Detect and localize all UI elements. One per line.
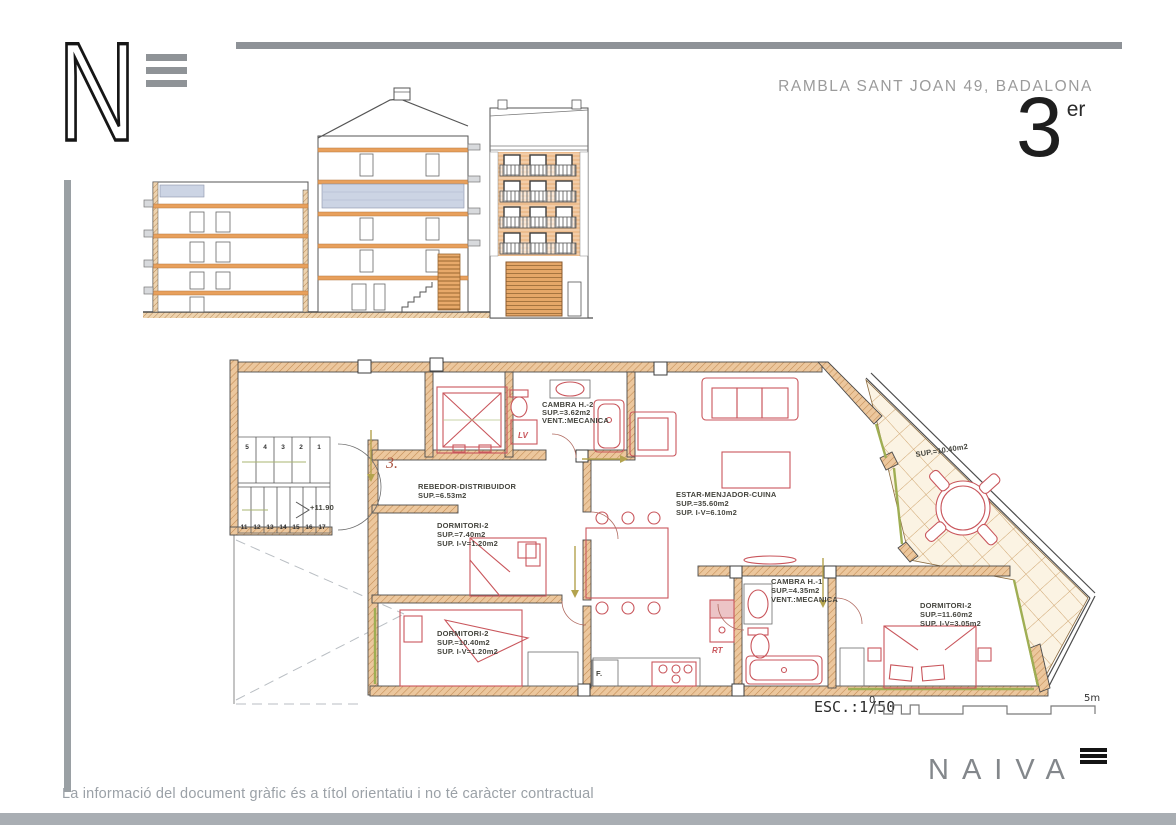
svg-text:SUP.=6.53m2: SUP.=6.53m2 — [418, 491, 467, 500]
floor-plan-drawing: 5 4 3 2 1 11 12 13 14 15 16 17 +11.90 — [225, 352, 1115, 724]
svg-text:SUP. I-V=6.10m2: SUP. I-V=6.10m2 — [676, 508, 737, 517]
section-left-building — [144, 182, 308, 312]
level-mark: +11.90 — [310, 503, 334, 512]
scale-bar: ESC.:1/50 0 5m — [814, 693, 1100, 716]
facade-garage-door — [506, 262, 562, 316]
sink-unit-label: RT — [712, 646, 724, 655]
stair-step-number: 3 — [281, 444, 285, 451]
svg-text:SUP.=7.40m2: SUP.=7.40m2 — [437, 530, 486, 539]
stairwell: 5 4 3 2 1 11 12 13 14 15 16 17 +11.90 — [238, 437, 381, 533]
stair-step-number: 1 — [317, 444, 321, 451]
room-label-estar: ESTAR-MENJADOR-CUINA SUP.=35.60m2 SUP. I… — [676, 490, 777, 517]
room-label-dormitori-se: DORMITORI-2 SUP.=11.60m2 SUP. I-V=3.05m2 — [920, 601, 981, 628]
logo-n-glyph: N — [56, 34, 151, 149]
scale-label: ESC.:1/50 — [814, 698, 895, 716]
stair-step-number: 16 — [305, 524, 313, 531]
svg-text:VENT.:MECANICA: VENT.:MECANICA — [771, 595, 838, 604]
stair-step-number: 15 — [292, 524, 300, 531]
svg-text:SUP.=10.40m2: SUP.=10.40m2 — [437, 638, 490, 647]
left-rule-bar — [64, 180, 71, 792]
legal-disclaimer: La informació del document gràfic és a t… — [62, 786, 594, 802]
terrace-table — [924, 469, 1002, 547]
logo-letter: N — [58, 34, 137, 149]
floor-suffix: er — [1067, 98, 1086, 122]
bottom-rule-bar — [0, 813, 1176, 825]
building-elevation-drawing — [138, 84, 604, 336]
stair-step-number: 5 — [245, 444, 249, 451]
brand-name: NAIVA — [928, 754, 1078, 787]
elevator — [437, 387, 507, 453]
stair-step-number: 12 — [253, 524, 261, 531]
room-label-rebedor: REBEDOR-DISTRIBUIDOR SUP.=6.53m2 — [418, 482, 517, 500]
room-label-cambra-h2: CAMBRA H.-2 SUP.=3.62m2 VENT.:MECANICA — [542, 400, 609, 425]
exterior-dashed-lines — [234, 535, 404, 704]
svg-text:SUP. I-V=1.20m2: SUP. I-V=1.20m2 — [437, 647, 498, 656]
stair-step-number: 2 — [299, 444, 303, 451]
floor-number: 3 — [1016, 88, 1063, 168]
scale-end: 5m — [1084, 693, 1100, 704]
ground-hatch — [143, 312, 493, 318]
stair-step-number: 11 — [241, 524, 248, 531]
brand-bars-icon — [1080, 748, 1107, 766]
stair-step-number: 17 — [318, 524, 326, 531]
svg-text:SUP. I-V=3.05m2: SUP. I-V=3.05m2 — [920, 619, 981, 628]
drawing-number: 3. — [385, 455, 398, 472]
svg-text:SUP.=11.60m2: SUP.=11.60m2 — [920, 610, 973, 619]
svg-text:CAMBRA H.-1: CAMBRA H.-1 — [771, 577, 823, 586]
svg-text:DORMITORI-2: DORMITORI-2 — [920, 601, 972, 610]
svg-text:VENT.:MECANICA: VENT.:MECANICA — [542, 416, 609, 425]
top-rule-bar — [236, 42, 1122, 49]
stair-step-number: 13 — [266, 524, 274, 531]
drawing-sheet: N RAMBLA SANT JOAN 49, BADALONA 3 er — [0, 0, 1176, 833]
svg-text:SUP. I-V=1.20m2: SUP. I-V=1.20m2 — [437, 539, 498, 548]
svg-text:SUP.=35.60m2: SUP.=35.60m2 — [676, 499, 729, 508]
floor-indicator: 3 er — [1016, 88, 1085, 168]
svg-text:ESTAR-MENJADOR-CUINA: ESTAR-MENJADOR-CUINA — [676, 490, 777, 499]
room-label-dormitori-s: DORMITORI-2 SUP.=10.40m2 SUP. I-V=1.20m2 — [437, 629, 498, 656]
stair-step-number: 14 — [279, 524, 287, 531]
svg-text:DORMITORI-2: DORMITORI-2 — [437, 629, 489, 638]
washer-label: LV — [518, 431, 528, 440]
room-label-dormitori-sw: DORMITORI-2 SUP.=7.40m2 SUP. I-V=1.20m2 — [437, 521, 498, 548]
bedroom-se-furniture — [840, 626, 991, 688]
section-shaft — [438, 254, 460, 310]
brand-logo: NAIVA — [928, 746, 1128, 790]
stair-step-number: 4 — [263, 444, 267, 451]
svg-text:SUP.=4.35m2: SUP.=4.35m2 — [771, 586, 820, 595]
scale-start: 0 — [869, 695, 875, 706]
section-middle-building — [318, 88, 480, 312]
svg-text:DORMITORI-2: DORMITORI-2 — [437, 521, 489, 530]
street-facade-elevation — [490, 100, 588, 318]
svg-text:REBEDOR-DISTRIBUIDOR: REBEDOR-DISTRIBUIDOR — [418, 482, 517, 491]
fridge-label: F. — [596, 669, 602, 678]
